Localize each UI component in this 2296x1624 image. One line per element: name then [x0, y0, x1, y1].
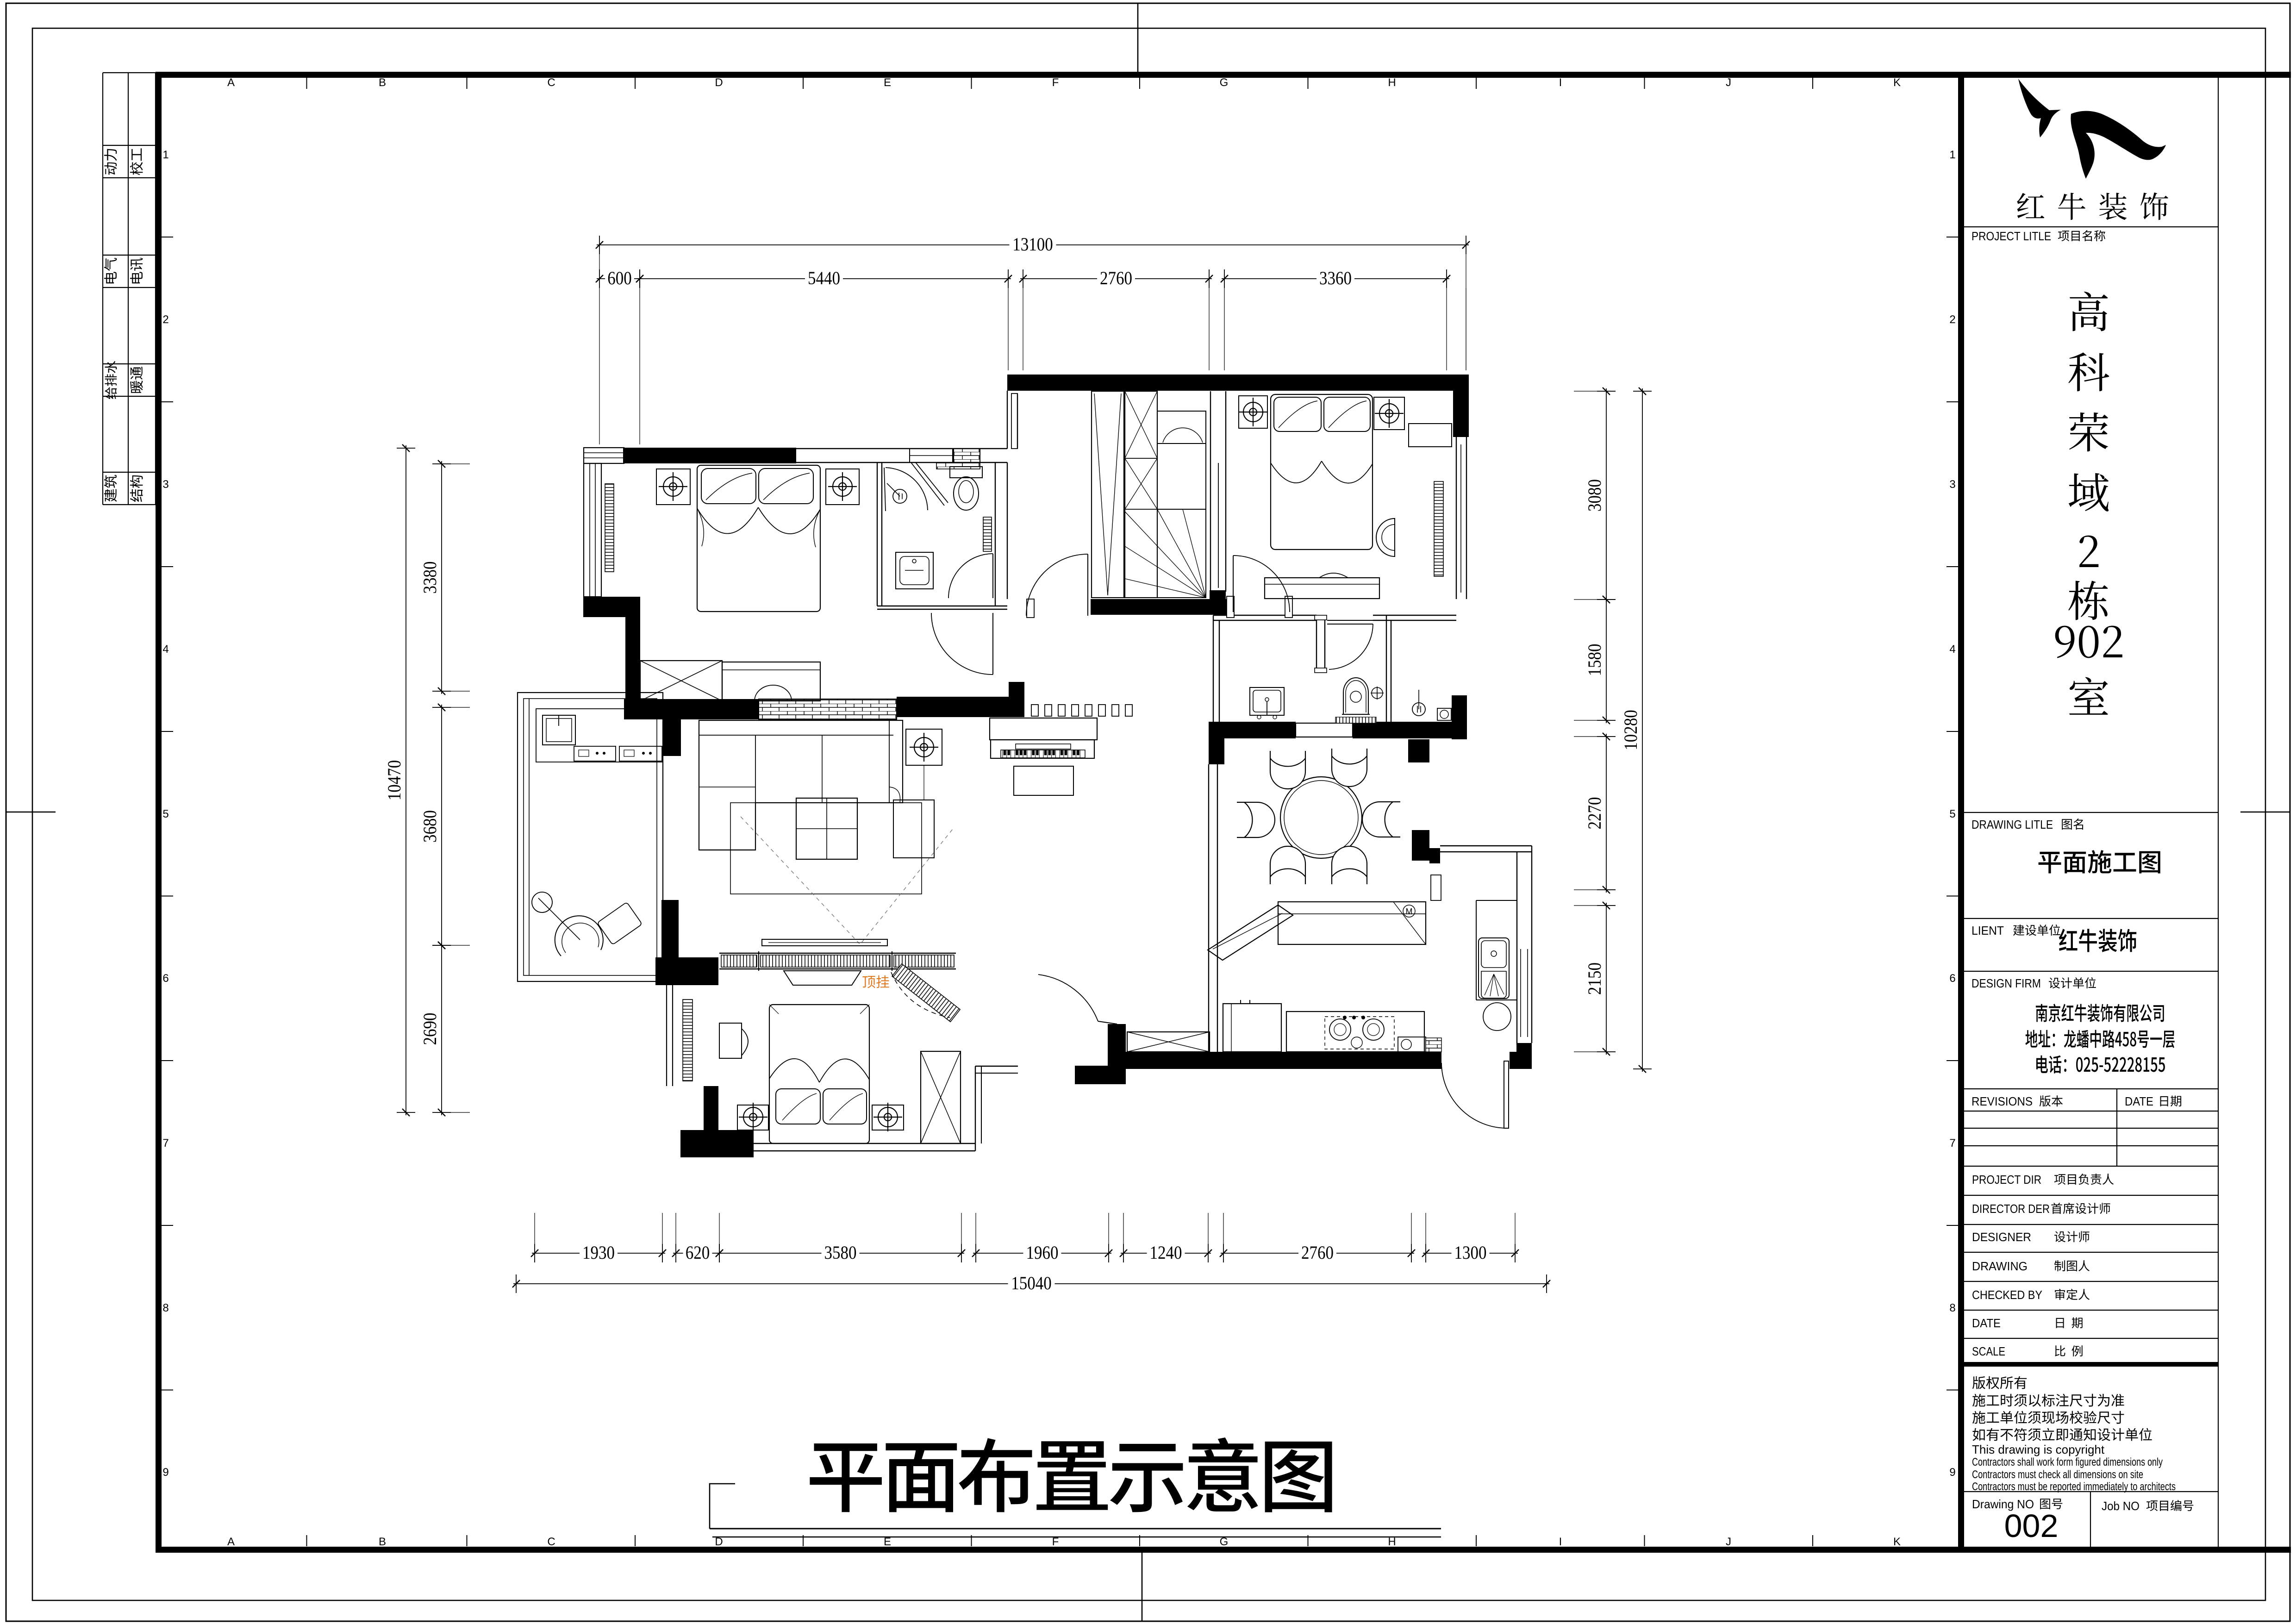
svg-text:C: C: [547, 1536, 555, 1548]
svg-text:8: 8: [162, 1302, 168, 1314]
svg-text:2270: 2270: [1584, 797, 1605, 830]
svg-text:DESIGNER: DESIGNER: [1972, 1230, 2031, 1244]
svg-text:CHECKED BY: CHECKED BY: [1972, 1288, 2042, 1302]
svg-text:600: 600: [607, 268, 632, 288]
svg-text:6: 6: [162, 972, 168, 985]
svg-text:10280: 10280: [1620, 710, 1641, 750]
svg-text:1580: 1580: [1584, 644, 1605, 676]
svg-text:SCALE: SCALE: [1972, 1344, 2005, 1358]
svg-text:9: 9: [162, 1466, 168, 1479]
svg-text:K: K: [1893, 1536, 1901, 1548]
svg-text:F: F: [1052, 76, 1059, 89]
svg-text:15040: 15040: [1011, 1273, 1052, 1293]
svg-text:2: 2: [1949, 313, 1955, 326]
svg-text:Contractors must be reported i: Contractors must be reported immediately…: [1972, 1480, 2176, 1493]
svg-text:DATE: DATE: [2125, 1094, 2153, 1108]
svg-text:1960: 1960: [1026, 1242, 1059, 1263]
svg-text:I: I: [1559, 1536, 1562, 1548]
svg-text:2: 2: [162, 313, 168, 326]
svg-text:1300: 1300: [1454, 1242, 1487, 1263]
svg-text:2760: 2760: [1301, 1242, 1334, 1263]
svg-text:4: 4: [1949, 643, 1955, 656]
svg-text:H: H: [1388, 76, 1396, 89]
svg-text:4: 4: [162, 643, 168, 656]
svg-text:5: 5: [162, 808, 168, 820]
svg-text:DESIGN FIRM: DESIGN FIRM: [1972, 976, 2041, 990]
svg-text:3680: 3680: [419, 810, 440, 843]
svg-text:M: M: [1406, 907, 1413, 916]
svg-text:1: 1: [162, 149, 168, 161]
svg-text:A: A: [227, 76, 235, 89]
svg-text:3080: 3080: [1584, 479, 1605, 512]
svg-text:8: 8: [1949, 1302, 1955, 1314]
svg-text:3380: 3380: [419, 562, 440, 594]
svg-text:I: I: [1559, 76, 1562, 89]
svg-text:J: J: [1726, 76, 1731, 89]
svg-text:1: 1: [1949, 149, 1955, 161]
svg-text:3: 3: [1949, 478, 1955, 491]
svg-text:B: B: [379, 76, 386, 89]
svg-text:LIENT: LIENT: [1972, 924, 2004, 937]
svg-text:3: 3: [162, 478, 168, 491]
svg-text:620: 620: [686, 1242, 710, 1263]
svg-text:B: B: [379, 1536, 386, 1548]
svg-text:Contractors must check all dim: Contractors must check all dimensions on…: [1972, 1468, 2143, 1481]
svg-text:6: 6: [1949, 972, 1955, 985]
svg-text:E: E: [884, 76, 891, 89]
svg-text:3580: 3580: [824, 1242, 857, 1263]
svg-text:PROJECT DIR: PROJECT DIR: [1972, 1173, 2041, 1187]
svg-text:3360: 3360: [1319, 268, 1352, 288]
svg-text:DRAWING: DRAWING: [1972, 1259, 2028, 1273]
svg-text:Contractors shall work form fi: Contractors shall work form figured dime…: [1972, 1456, 2163, 1468]
svg-text:A: A: [227, 1536, 235, 1548]
svg-text:002: 002: [2004, 1508, 2059, 1544]
svg-text:This drawing is copyright: This drawing is copyright: [1972, 1443, 2105, 1456]
svg-text:K: K: [1893, 76, 1901, 89]
svg-text:7: 7: [1949, 1137, 1955, 1149]
svg-text:2690: 2690: [419, 1013, 440, 1045]
svg-text:C: C: [547, 76, 555, 89]
svg-text:DRAWING LITLE: DRAWING LITLE: [1972, 818, 2053, 831]
svg-text:1240: 1240: [1150, 1242, 1182, 1263]
svg-text:5440: 5440: [808, 268, 840, 288]
svg-text:G: G: [1220, 76, 1229, 89]
svg-text:2150: 2150: [1584, 962, 1605, 995]
svg-text:DATE: DATE: [1972, 1316, 2001, 1330]
svg-text:10470: 10470: [384, 760, 405, 801]
svg-text:PROJECT LITLE: PROJECT LITLE: [1972, 229, 2051, 243]
svg-text:9: 9: [1949, 1466, 1955, 1479]
svg-text:Job NO: Job NO: [2102, 1499, 2140, 1513]
svg-text:2760: 2760: [1100, 268, 1132, 288]
svg-text:5: 5: [1949, 808, 1955, 820]
svg-text:D: D: [715, 76, 723, 89]
svg-text:13100: 13100: [1012, 234, 1053, 255]
svg-text:J: J: [1726, 1536, 1731, 1548]
svg-text:DIRECTOR DER: DIRECTOR DER: [1972, 1202, 2050, 1216]
svg-text:REVISIONS: REVISIONS: [1972, 1094, 2033, 1108]
svg-text:7: 7: [162, 1137, 168, 1149]
svg-text:1930: 1930: [582, 1242, 615, 1263]
